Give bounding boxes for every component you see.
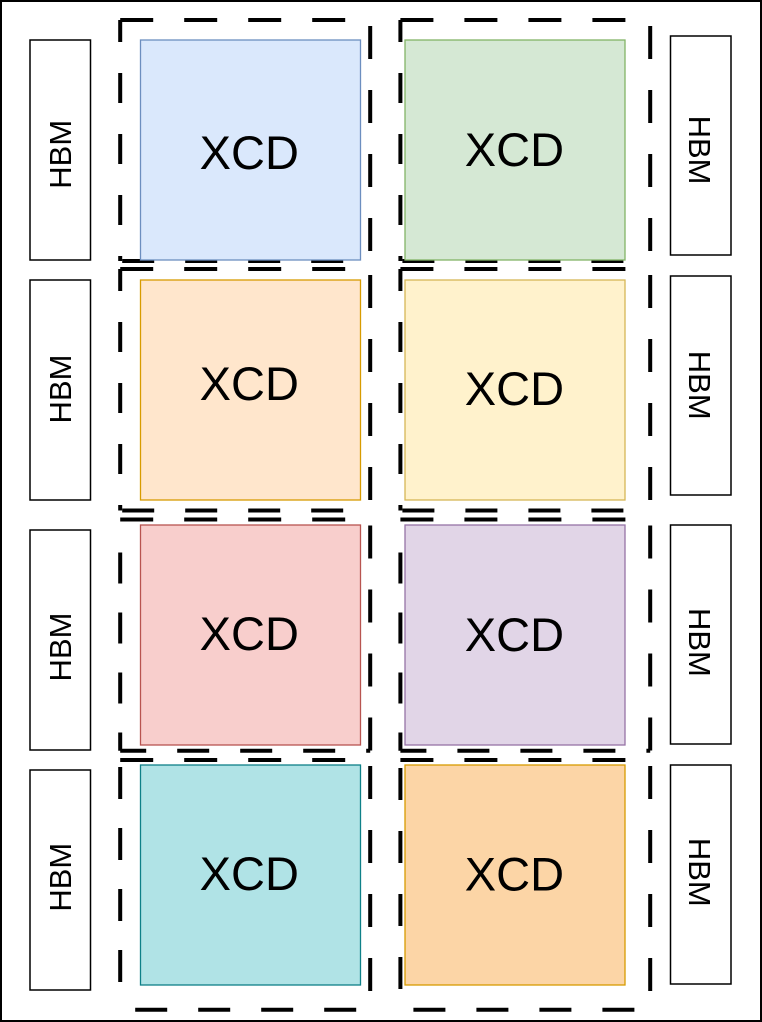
svg-text:HBM: HBM [682,838,717,907]
svg-text:XCD: XCD [200,357,299,410]
svg-text:HBM: HBM [682,351,717,420]
svg-text:XCD: XCD [465,848,564,901]
svg-text:XCD: XCD [200,607,299,660]
svg-text:XCD: XCD [465,362,564,415]
svg-text:HBM: HBM [43,355,78,424]
svg-text:XCD: XCD [200,847,299,900]
svg-text:XCD: XCD [200,126,299,179]
svg-text:HBM: HBM [682,116,717,185]
svg-text:HBM: HBM [682,608,717,677]
svg-text:HBM: HBM [43,120,78,189]
svg-text:XCD: XCD [465,123,564,176]
svg-text:XCD: XCD [465,608,564,661]
svg-text:HBM: HBM [43,613,78,682]
svg-text:HBM: HBM [43,843,78,912]
